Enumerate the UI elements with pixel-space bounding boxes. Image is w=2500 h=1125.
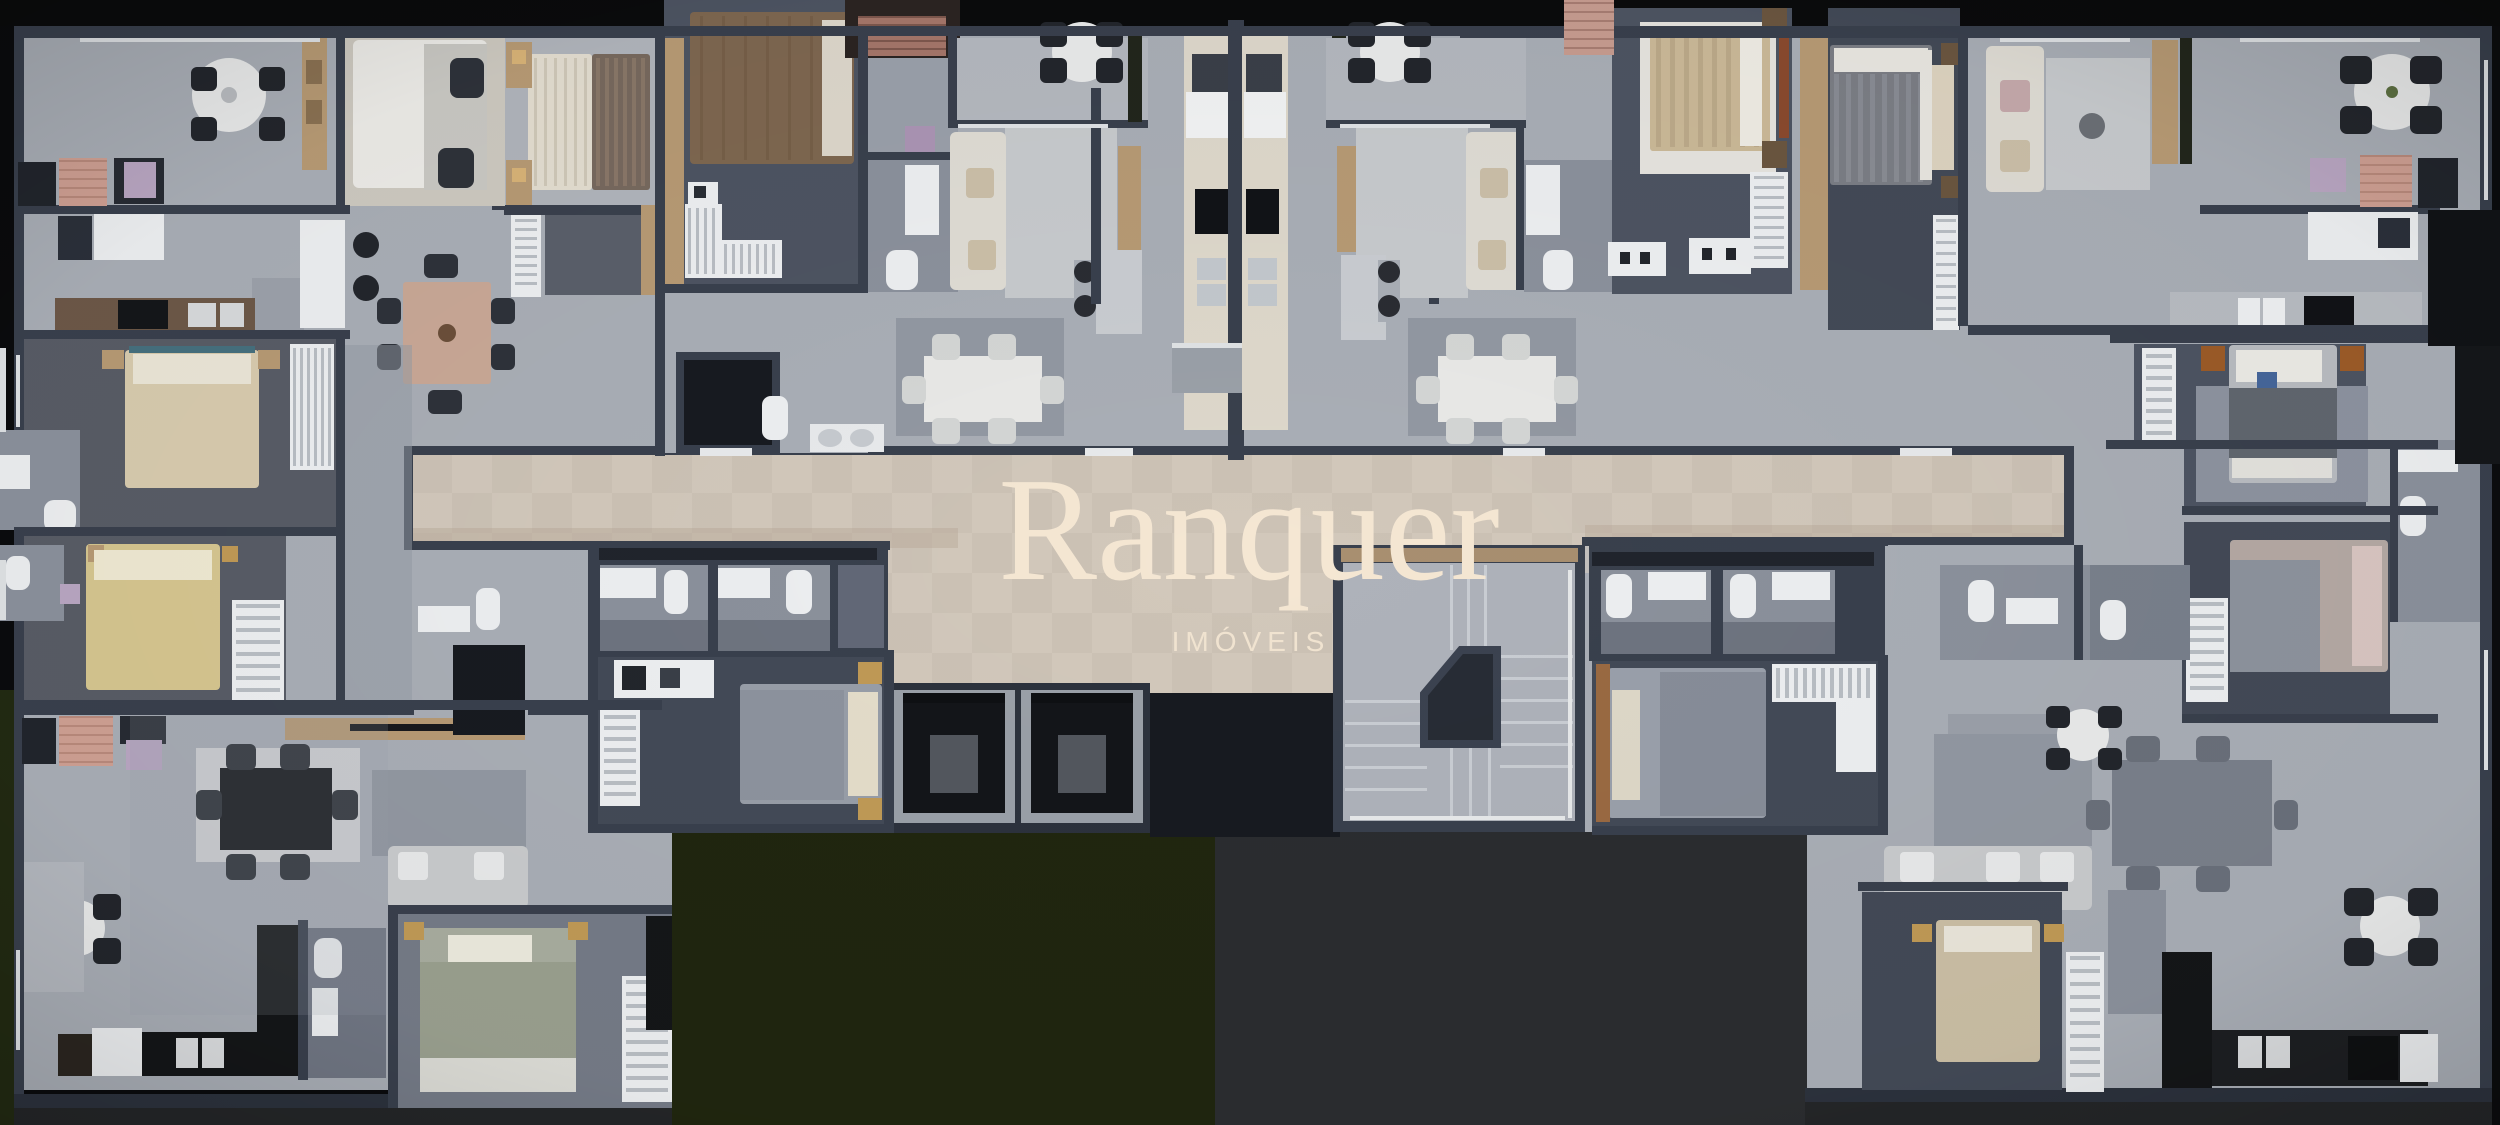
svg-text:IMÓVEIS: IMÓVEIS <box>1172 626 1331 657</box>
